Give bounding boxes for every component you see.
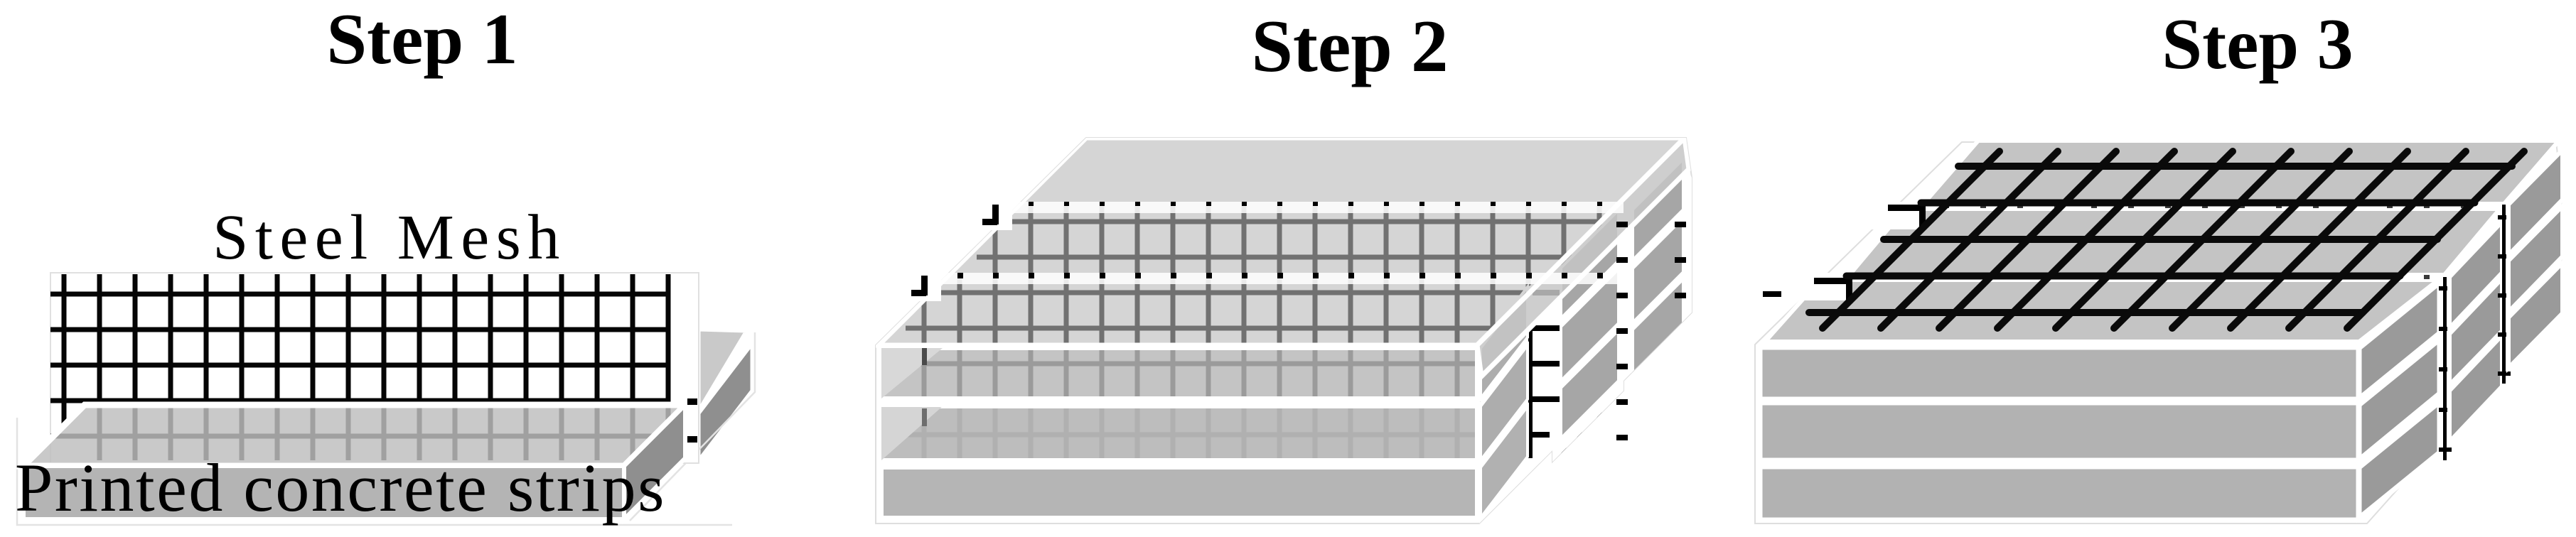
svg-text:Step 1: Step 1: [326, 0, 517, 80]
svg-text:Step 3: Step 3: [2162, 4, 2353, 85]
svg-text:Printed concrete strips: Printed concrete strips: [15, 450, 666, 526]
svg-text:Steel Mesh: Steel Mesh: [213, 202, 566, 273]
svg-text:Step 2: Step 2: [1251, 4, 1448, 87]
